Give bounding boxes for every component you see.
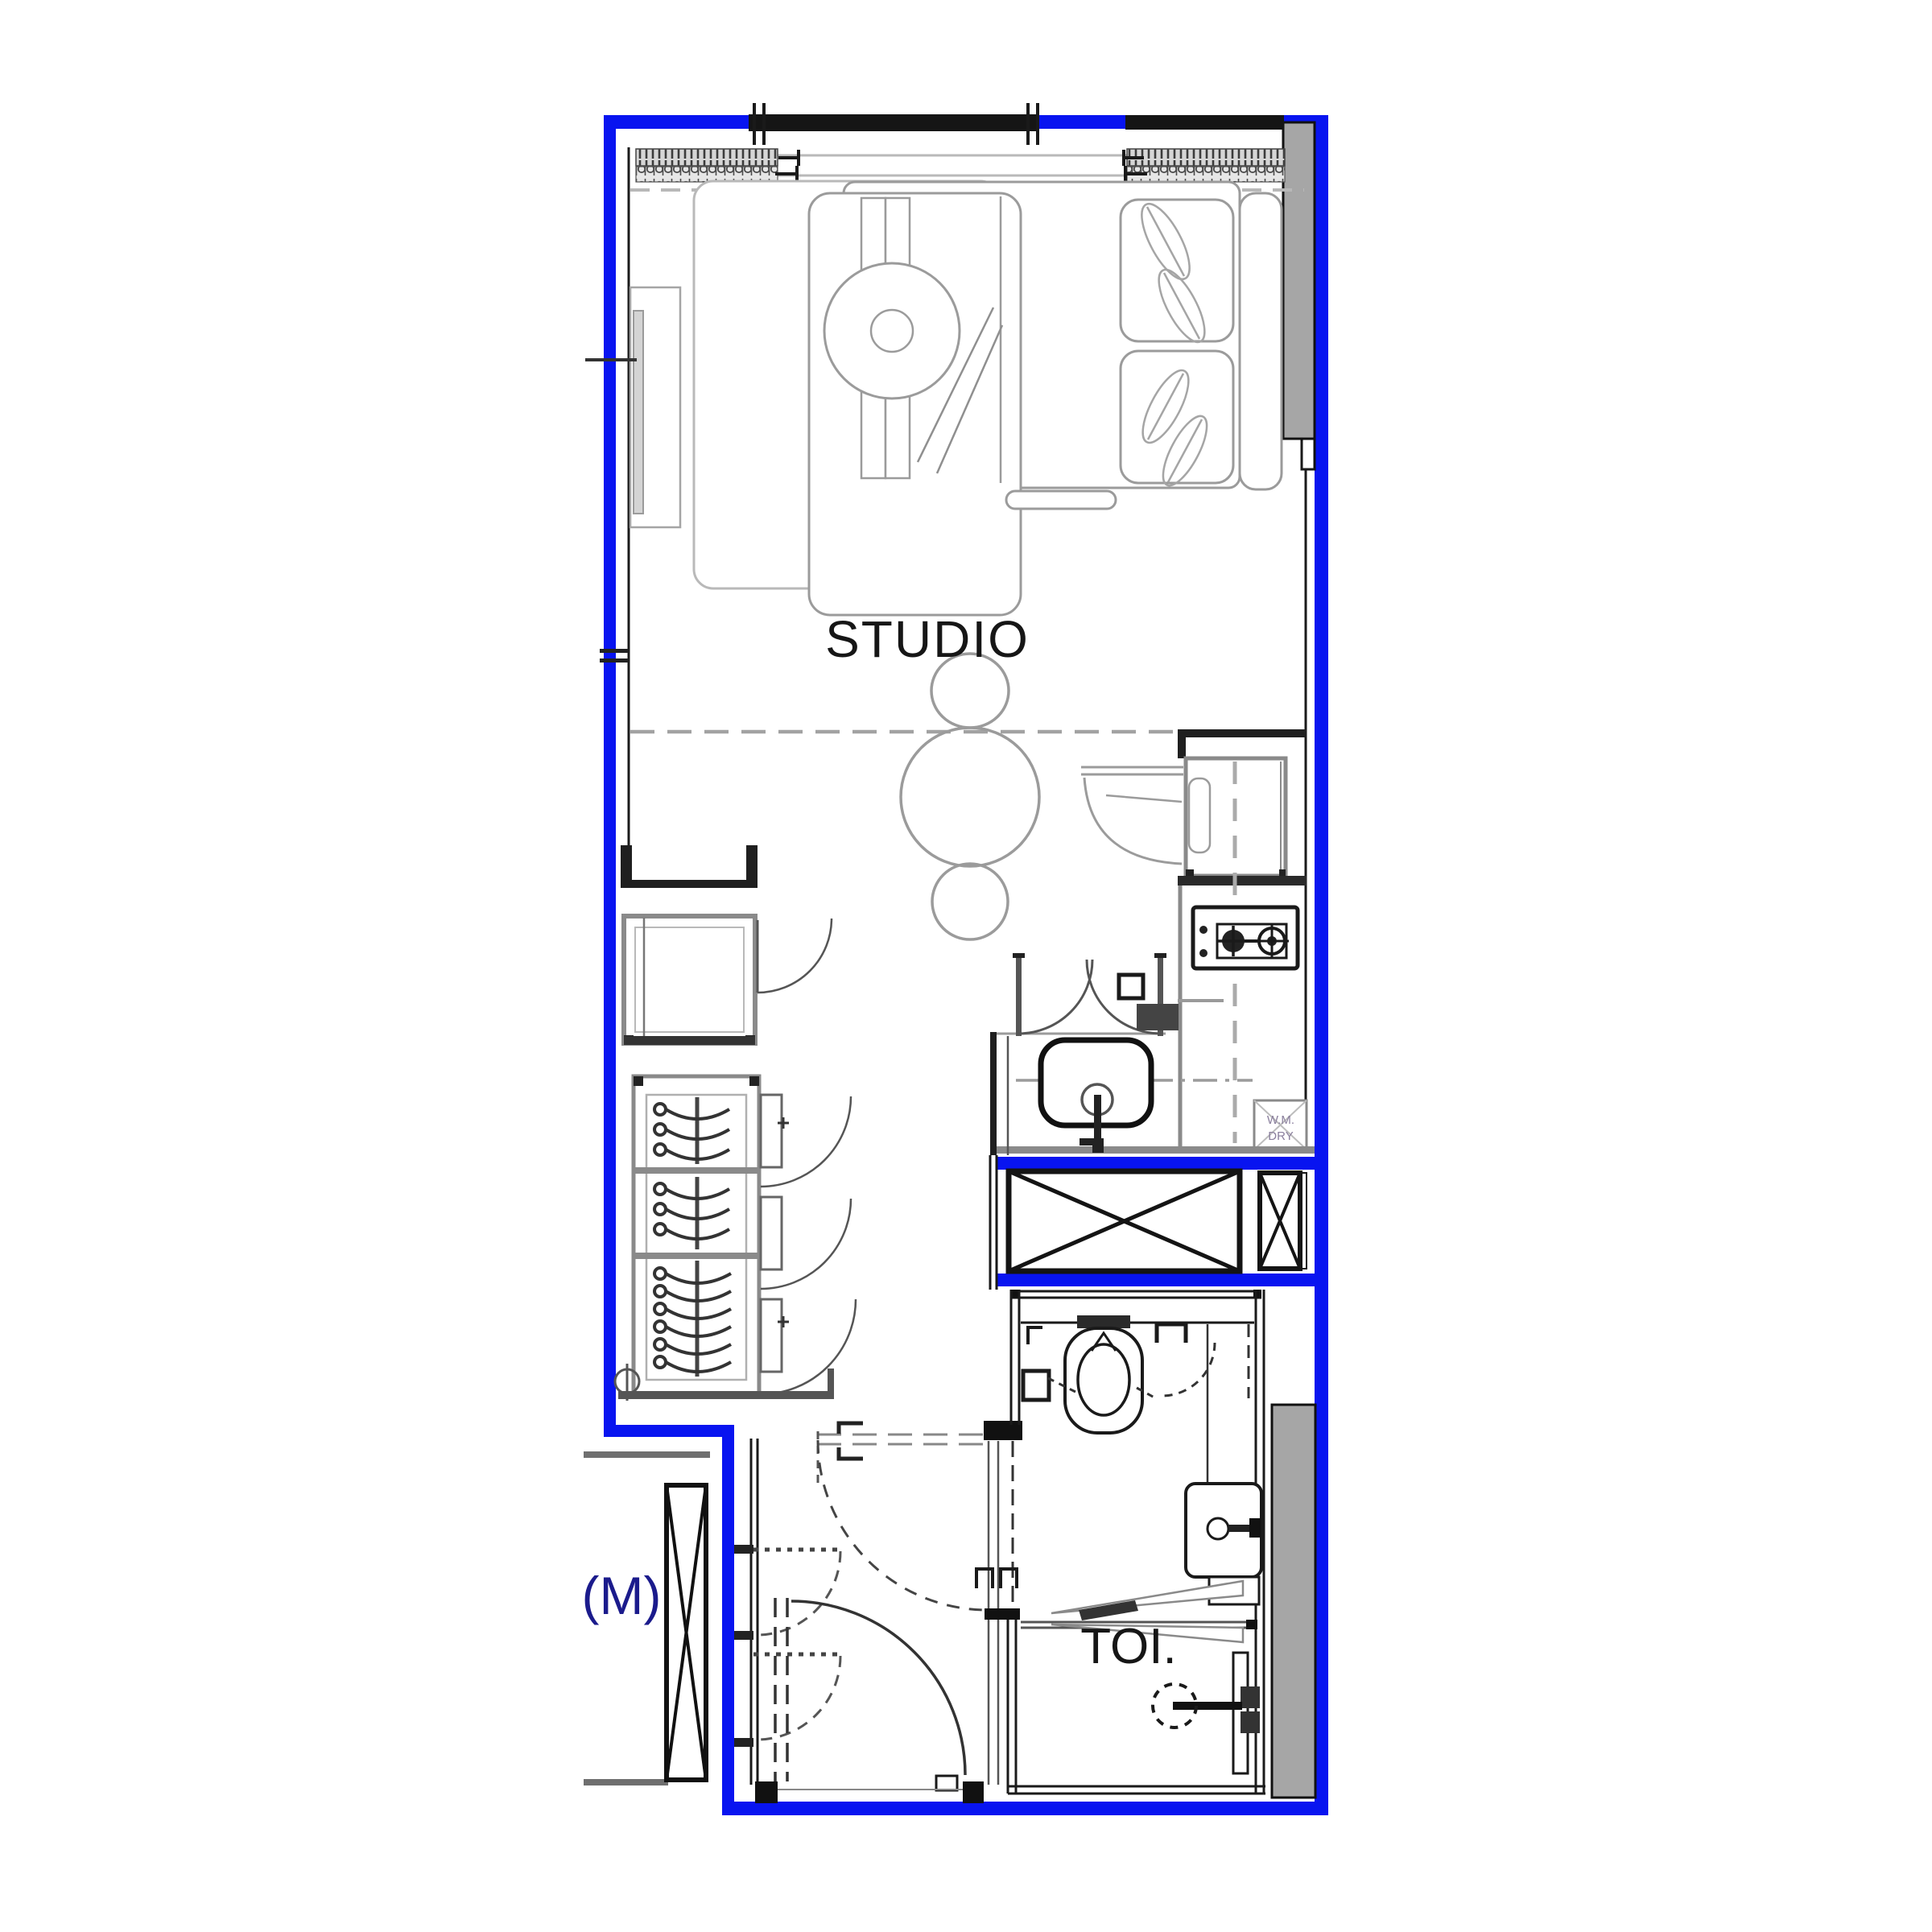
tv-panel [585,287,680,527]
bed-bench [1006,491,1116,509]
dining-set [901,654,1039,939]
washer-dryer-label-1: W.M. [1267,1113,1294,1127]
label-toilet: TOI. [1080,1619,1176,1674]
floor-plan: W.M. DRY [0,0,1932,1932]
shaft-top-outline [996,1157,1328,1170]
grab-bar [1137,1324,1215,1397]
pillow [1121,200,1233,341]
duvet [809,193,1021,615]
washer-dryer-box: W.M. DRY [1254,1100,1307,1150]
round-cushion [824,263,960,398]
entry-door-arc [791,1601,965,1775]
floor-plan-canvas: W.M. DRY [0,0,1932,1932]
cistern [1077,1315,1130,1328]
window-coil-right [1127,149,1285,166]
lintel-bar [749,114,1036,131]
door-arc [758,919,832,993]
door-arc [818,1440,988,1610]
switch-box [1119,975,1143,998]
bed [694,181,1282,615]
adjacent-area: (M) [582,1451,710,1785]
cabinet-niche [621,845,832,1045]
adjacent-wall [584,1451,710,1458]
label-studio: STUDIO [825,610,1030,668]
threshold [755,1781,778,1803]
closet-door-arc [757,1656,840,1740]
closet-door-arc [757,1551,840,1635]
wardrobe [615,1076,856,1401]
service-shaft [990,1155,1307,1290]
entry [734,1439,984,1803]
toilet-room: TOI. [976,1290,1265,1794]
wc [1065,1315,1142,1433]
dining-table [901,728,1039,866]
sliding-door [976,1441,1020,1785]
washer-dryer-label-2: DRY [1268,1129,1293,1143]
label-adjacent-unit: (M) [582,1566,662,1625]
swing-door-arc [1018,960,1092,1034]
sink-alcove [990,953,1224,1155]
adjacent-wall [584,1779,668,1785]
shaft-bottom-outline [996,1274,1328,1286]
bifold-door-panel [761,1095,782,1167]
dining-chair [932,864,1008,939]
stove [1193,907,1298,968]
door-stop [936,1776,957,1790]
headboard [1240,193,1282,489]
window-coil-left [636,149,778,166]
threshold [963,1781,984,1803]
